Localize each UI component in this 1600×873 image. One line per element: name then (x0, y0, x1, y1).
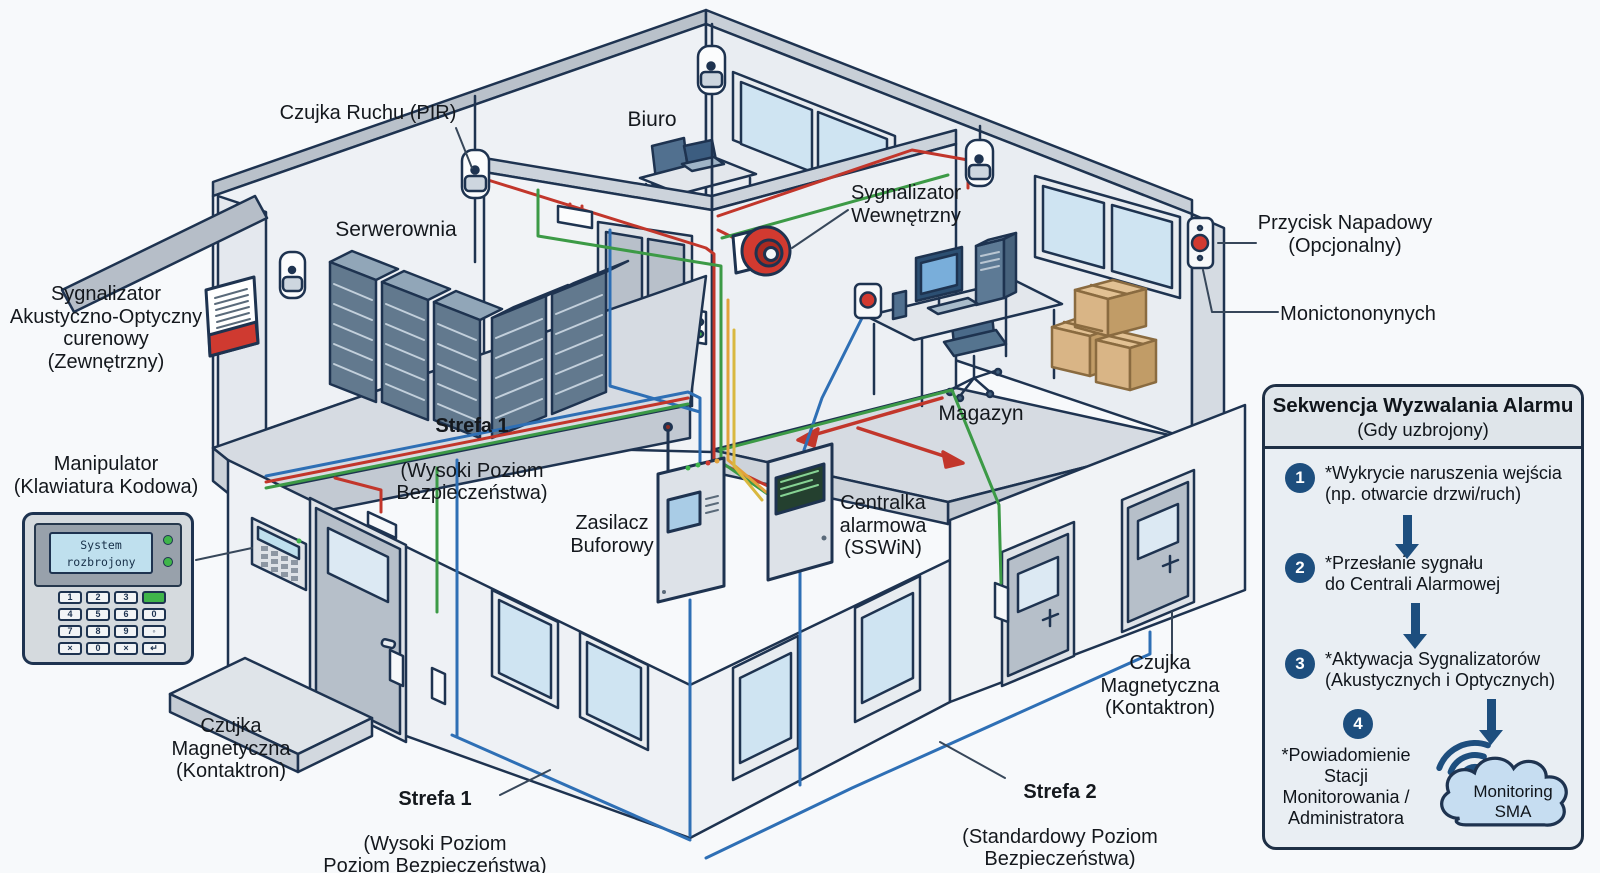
label-warehouse: Magazyn (938, 402, 1023, 426)
key-button: ◦ (142, 625, 166, 638)
label-server-room: Serwerownia (335, 218, 456, 242)
panic-button-icon (1188, 218, 1213, 268)
keypad-device: System rozbrojony 1 2 3 4 5 6 0 7 8 9 ◦ … (22, 512, 194, 665)
label-external-siren: Sygnalizator Akustyczno-Optyczny curenow… (10, 283, 202, 373)
key-button: 0 (142, 608, 166, 621)
label-magnetic-left: Czujka Magnetyczna (Kontaktron) (172, 715, 291, 783)
label-pir: Czujka Ruchu (PIR) (280, 102, 457, 125)
alarm-panel-icon (768, 444, 832, 580)
led-icon (163, 557, 173, 567)
label-monitored: Monictononynych (1280, 303, 1436, 326)
key-button: 9 (114, 625, 138, 638)
external-siren-icon (206, 277, 258, 356)
key-button: 5 (86, 608, 110, 621)
keypad-display-band: System rozbrojony (34, 523, 182, 587)
keypad-lcd: System rozbrojony (49, 532, 153, 574)
key-button: × (58, 642, 82, 655)
step-number-badge: 1 (1285, 463, 1315, 493)
internal-siren-icon (733, 227, 790, 275)
key-button: 8 (86, 625, 110, 638)
panel-header: Sekwencja Wyzwalania Alarmu (Gdy uzbrojo… (1265, 387, 1581, 449)
label-zone2: Strefa 2 (Standardowy Poziom Bezpieczeńs… (962, 758, 1158, 873)
step-number-badge: 3 (1285, 649, 1315, 679)
step-number-badge: 2 (1285, 553, 1315, 583)
key-arm-button (142, 591, 166, 604)
step-2: 2 *Przesłanie sygnału do Centrali Alarmo… (1285, 553, 1500, 595)
step-1: 1 *Wykrycie naruszenia wejścia (np. otwa… (1285, 463, 1562, 505)
key-button: 3 (114, 591, 138, 604)
key-button: 4 (58, 608, 82, 621)
key-button: 6 (114, 608, 138, 621)
label-control-panel: Centralka alarmowa (SSWiN) (840, 492, 927, 560)
key-button: 7 (58, 625, 82, 638)
label-magnetic-right: Czujka Magnetyczna (Kontaktron) (1101, 652, 1220, 720)
led-icon (163, 535, 173, 545)
arrow-down-icon (1411, 603, 1420, 635)
step-4-text: *Powiadomienie Stacji Monitorowania / Ad… (1265, 745, 1427, 829)
diagram-canvas: Czujka Ruchu (PIR) Biuro Serwerownia Mag… (0, 0, 1600, 873)
arrow-down-icon (1403, 515, 1412, 545)
alarm-sequence-panel: Sekwencja Wyzwalania Alarmu (Gdy uzbrojo… (1262, 384, 1584, 850)
key-button: 1 (58, 591, 82, 604)
wall-button-icon (855, 284, 881, 318)
label-power-supply: Zasilacz Buforowy (570, 512, 653, 557)
label-keypad: Manipulator (Klawiatura Kodowa) (14, 453, 199, 498)
key-button: ↵ (142, 642, 166, 655)
step-3: 3 *Aktywacja Sygnalizatorów (Akustycznyc… (1285, 649, 1555, 691)
label-office: Biuro (627, 108, 676, 132)
panel-title: Sekwencja Wyzwalania Alarmu (1269, 394, 1577, 418)
keypad-keys: 1 2 3 4 5 6 0 7 8 9 ◦ × 0 × ↵ (58, 591, 166, 655)
key-button: × (114, 642, 138, 655)
key-button: 0 (86, 642, 110, 655)
label-zone1-floor: Strefa 1 (Wysoki Poziom Bezpieczeństwa) (396, 392, 547, 528)
label-internal-siren: Sygnalizator Wewnętrzny (851, 182, 961, 227)
label-zone1-bottom: Strefa 1 (Wysoki Poziom Poziom Bezpiecze… (323, 765, 546, 873)
step-number-badge: 4 (1343, 709, 1373, 739)
key-button: 2 (86, 591, 110, 604)
front-center-wall (690, 560, 950, 838)
panel-subtitle: (Gdy uzbrojony) (1269, 419, 1577, 441)
label-panic-button: Przycisk Napadowy (Opcjonalny) (1258, 212, 1433, 257)
cloud-label: Monitoring SMA (1457, 782, 1569, 823)
